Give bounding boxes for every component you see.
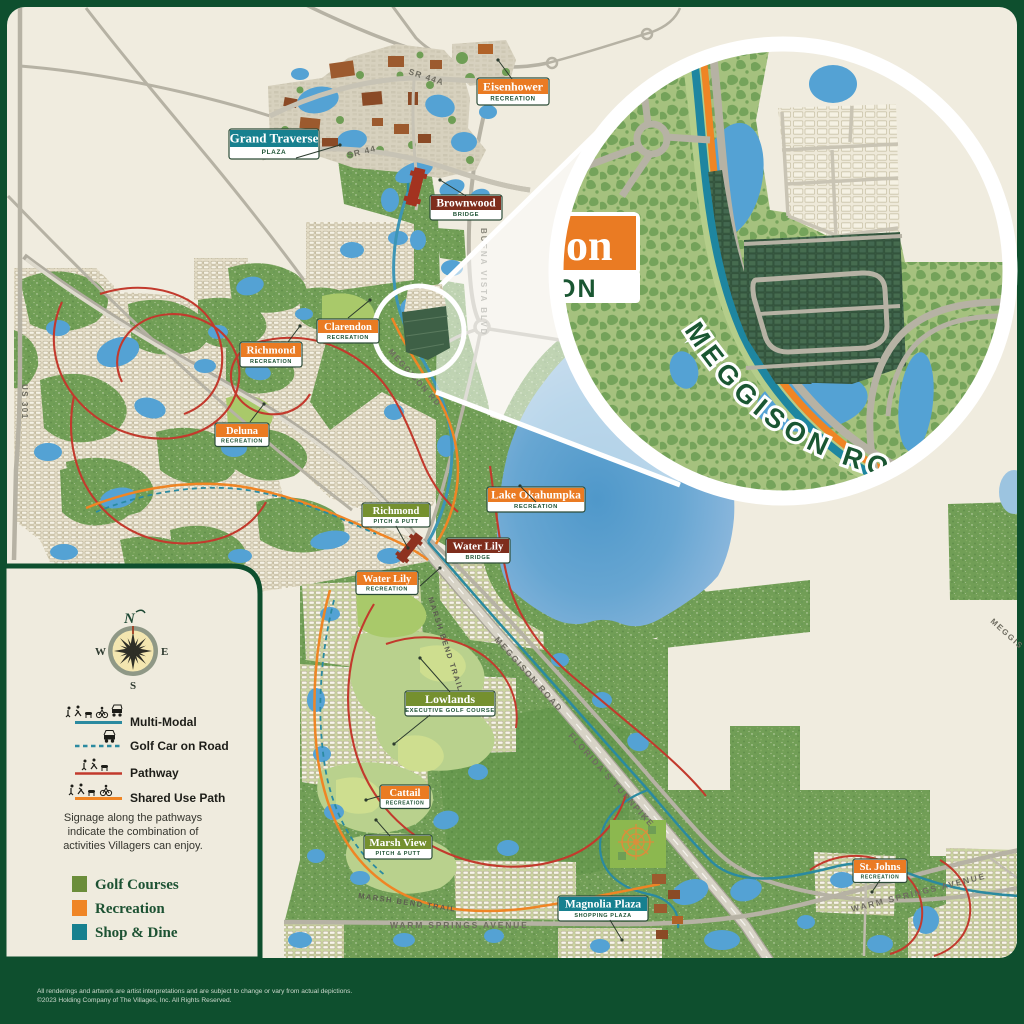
svg-text:All renderings and artwork are: All renderings and artwork are artist in… (37, 988, 352, 995)
svg-text:PLAZA: PLAZA (262, 149, 287, 156)
svg-text:Brownwood: Brownwood (436, 198, 496, 210)
svg-text:Eisenhower: Eisenhower (483, 79, 544, 93)
svg-text:RECREATION: RECREATION (514, 504, 558, 510)
svg-text:SHOPPING PLAZA: SHOPPING PLAZA (574, 913, 631, 919)
svg-text:RECREATION: RECREATION (221, 439, 263, 445)
svg-text:Pathway: Pathway (130, 766, 179, 780)
svg-text:St. Johns: St. Johns (860, 862, 901, 873)
svg-text:US 301: US 301 (20, 384, 29, 420)
svg-text:RECREATION: RECREATION (250, 359, 292, 365)
svg-text:Shop & Dine: Shop & Dine (95, 925, 178, 941)
svg-text:Golf Car on Road: Golf Car on Road (130, 739, 229, 753)
svg-text:©2023 Holding Company of The V: ©2023 Holding Company of The Villages, I… (37, 996, 232, 1004)
svg-text:activities Villagers can enjoy: activities Villagers can enjoy. (63, 840, 203, 852)
svg-text:PITCH & PUTT: PITCH & PUTT (373, 519, 418, 525)
svg-text:Richmond: Richmond (247, 344, 296, 356)
svg-text:Golf Courses: Golf Courses (95, 877, 179, 893)
svg-text:RECREATION: RECREATION (490, 97, 535, 103)
svg-text:Marsh View: Marsh View (369, 837, 426, 849)
svg-text:BRIDGE: BRIDGE (466, 555, 491, 561)
svg-text:WARM SPRINGS AVENUE: WARM SPRINGS AVENUE (390, 920, 529, 930)
svg-text:S: S (130, 680, 136, 692)
svg-text:RECREATION: RECREATION (327, 335, 369, 341)
svg-text:N: N (123, 611, 136, 627)
svg-text:RECREATION: RECREATION (861, 874, 900, 880)
svg-text:Deluna: Deluna (226, 426, 259, 437)
svg-text:BRIDGE: BRIDGE (453, 212, 479, 218)
svg-text:Recreation: Recreation (95, 901, 165, 917)
svg-text:Shared Use Path: Shared Use Path (130, 791, 225, 805)
svg-text:RECREATION: RECREATION (366, 587, 408, 593)
svg-text:EXECUTIVE GOLF COURSE: EXECUTIVE GOLF COURSE (405, 708, 495, 714)
svg-text:PITCH & PUTT: PITCH & PUTT (375, 851, 420, 857)
svg-text:Signage along the pathways: Signage along the pathways (64, 812, 203, 824)
svg-text:Water Lily: Water Lily (453, 540, 504, 552)
svg-text:RECREATION: RECREATION (386, 800, 425, 806)
svg-text:Cattail: Cattail (390, 788, 421, 799)
svg-text:Lake Okahumpka: Lake Okahumpka (491, 490, 581, 502)
svg-text:Lowlands: Lowlands (425, 692, 475, 706)
svg-text:indicate the combination of: indicate the combination of (68, 826, 200, 838)
svg-text:Grand Traverse: Grand Traverse (230, 131, 319, 146)
svg-text:E: E (161, 646, 168, 658)
svg-text:Clarendon: Clarendon (324, 322, 372, 333)
svg-text:W: W (95, 646, 106, 658)
svg-text:Magnolia Plaza: Magnolia Plaza (565, 899, 642, 911)
svg-text:Water Lily: Water Lily (363, 574, 412, 585)
svg-text:on: on (566, 221, 612, 270)
svg-text:Richmond: Richmond (373, 506, 420, 517)
svg-text:Multi-Modal: Multi-Modal (130, 715, 197, 729)
